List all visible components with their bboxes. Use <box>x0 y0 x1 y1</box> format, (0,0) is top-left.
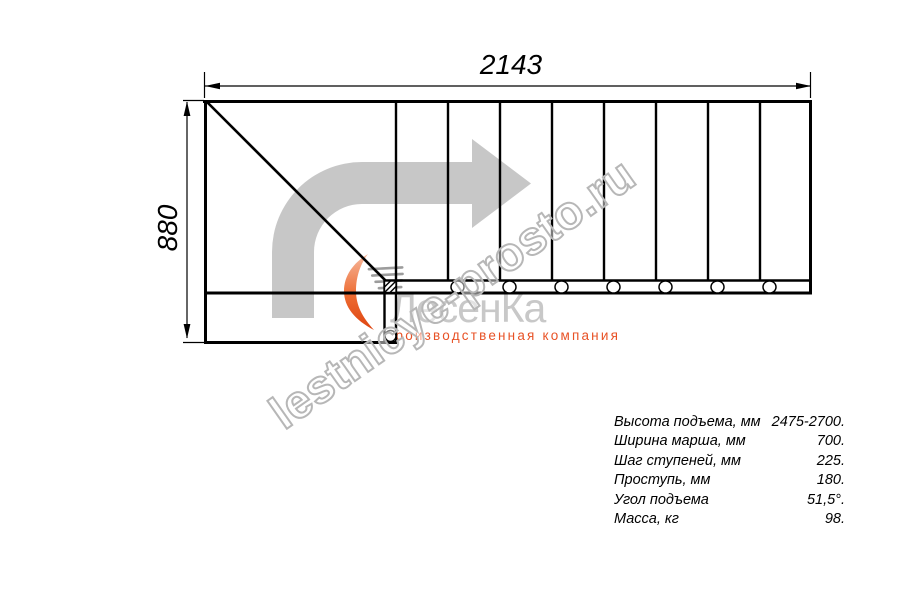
spec-row: Проступь, мм 180. <box>614 471 845 490</box>
spec-row: Масса, кг 98. <box>614 510 845 529</box>
spec-value: 2475-2700. <box>772 413 845 432</box>
spec-value: 225. <box>817 452 845 471</box>
dimension-height-label: 880 <box>152 183 180 273</box>
spec-row: Угол подъема 51,5°. <box>614 491 845 510</box>
spec-row: Ширина марша, мм 700. <box>614 432 845 451</box>
newel-hatch <box>385 281 397 293</box>
dimension-width-label: 2143 <box>466 49 556 81</box>
spec-row: Шаг ступеней, мм 225. <box>614 452 845 471</box>
spec-label: Угол подъема <box>614 491 709 510</box>
spec-value: 700. <box>817 432 845 451</box>
spec-value: 180. <box>817 471 845 490</box>
spec-label: Высота подъема, мм <box>614 413 761 432</box>
bolt-hole <box>763 281 776 293</box>
bolt-hole <box>659 281 672 293</box>
spec-label: Масса, кг <box>614 510 679 529</box>
bolt-hole <box>555 281 568 293</box>
spec-row: Высота подъема, мм 2475-2700. <box>614 413 845 432</box>
spec-label: Ширина марша, мм <box>614 432 746 451</box>
spec-table: Высота подъема, мм 2475-2700. Ширина мар… <box>614 413 845 529</box>
bolt-hole <box>607 281 620 293</box>
spec-value: 98. <box>825 510 845 529</box>
stair-plan-page: ЛесенКа производственная компания <box>0 0 900 600</box>
spec-value: 51,5°. <box>807 491 845 510</box>
bolt-hole <box>711 281 724 293</box>
spec-label: Шаг ступеней, мм <box>614 452 741 471</box>
spec-label: Проступь, мм <box>614 471 710 490</box>
